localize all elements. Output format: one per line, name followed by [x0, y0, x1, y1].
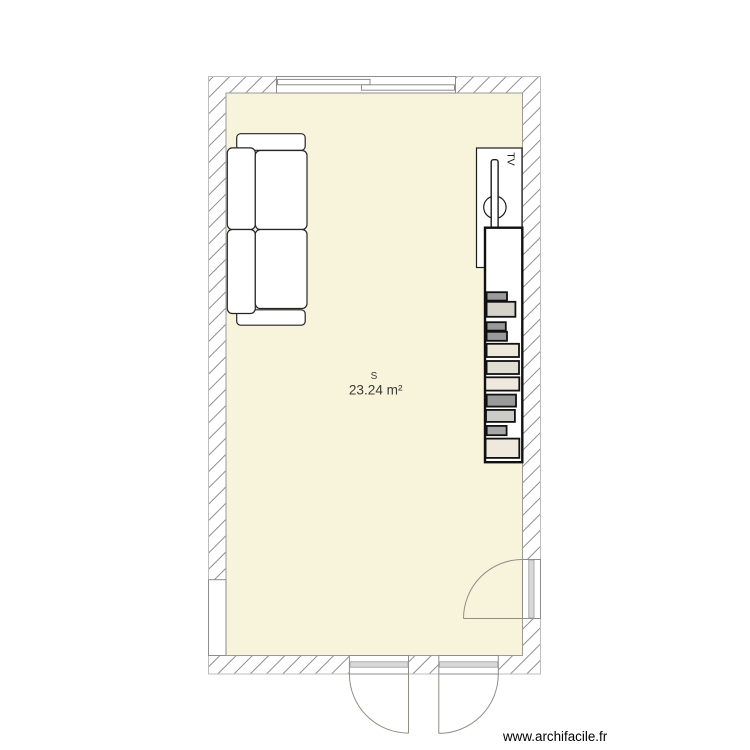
svg-text:23.24 m²: 23.24 m² — [349, 383, 403, 398]
svg-text:www.archifacile.fr: www.archifacile.fr — [502, 729, 608, 744]
svg-text:TV: TV — [504, 152, 516, 165]
svg-text:S: S — [371, 371, 378, 382]
